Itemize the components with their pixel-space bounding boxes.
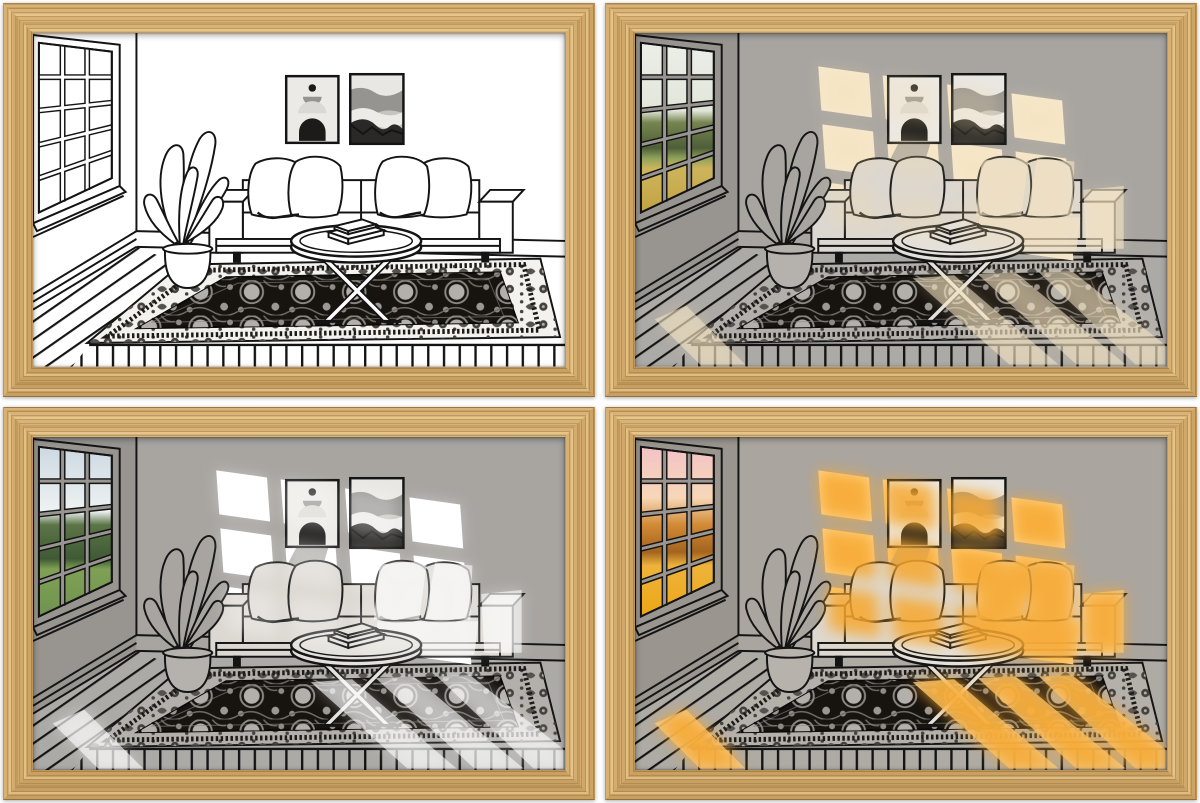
room-illustration-white-daylight bbox=[33, 437, 565, 771]
room-illustration-golden-sunset bbox=[635, 437, 1167, 771]
framed-prints-grid bbox=[0, 0, 1200, 803]
room-illustration-line-art bbox=[33, 33, 565, 367]
framed-print-top-left bbox=[3, 3, 595, 397]
art-canvas-bottom-left bbox=[33, 437, 565, 771]
room-illustration-warm-daylight bbox=[635, 33, 1167, 367]
framed-print-top-right bbox=[605, 3, 1197, 397]
art-canvas-top-left bbox=[33, 33, 565, 367]
framed-print-bottom-right bbox=[605, 407, 1197, 801]
framed-print-bottom-left bbox=[3, 407, 595, 801]
art-canvas-bottom-right bbox=[635, 437, 1167, 771]
art-canvas-top-right bbox=[635, 33, 1167, 367]
